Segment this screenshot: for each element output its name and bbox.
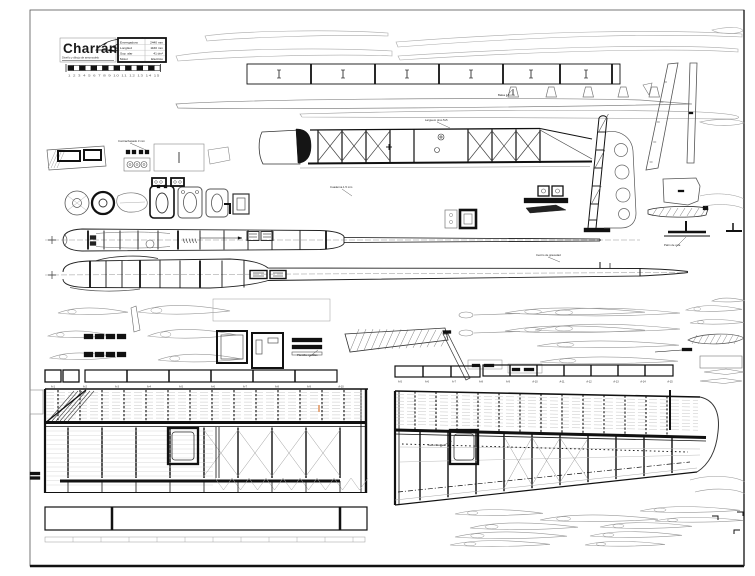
rib-label: A-5 [179, 386, 184, 389]
scale-bar-segment [154, 66, 160, 71]
stack-part [106, 352, 115, 357]
rib-label: A-2 [83, 386, 88, 389]
rib-label: A-10 [338, 386, 344, 389]
scale-bar-segment [126, 66, 132, 71]
spec-label-motor: Motor [120, 57, 128, 61]
stack-part [84, 352, 93, 357]
annotation: Contrachapado 3 mm [118, 139, 146, 143]
rib-label: A-6 [211, 386, 216, 389]
stack-part [117, 352, 126, 357]
annotation: Plantilla costillas [297, 353, 318, 357]
tab [139, 150, 143, 154]
spar-stock [292, 338, 322, 342]
scale-bar-segment [103, 66, 109, 71]
rib-label: A-1 [51, 386, 56, 389]
plan-line [524, 368, 534, 371]
scale-bar-segment [85, 66, 91, 71]
scale-bar-segment [68, 66, 74, 71]
spec-value-length: 1160 mm [150, 46, 163, 50]
annotation: Larguero pino 5x5 [425, 118, 448, 122]
scale-bar-segment [97, 66, 103, 71]
rib-label: A-9 [307, 386, 312, 389]
stack-part [95, 334, 104, 339]
spec-label-span: Envergadura [120, 40, 138, 44]
plan-drawing: Charrán Diseño y dibujo de aeromodelo En… [0, 0, 755, 576]
scale-bar-segment [91, 66, 97, 71]
plan-title: Charrán [63, 41, 118, 56]
annotation: Centro de gravedad [536, 253, 561, 257]
scale-bar-segment [143, 66, 149, 71]
stack-part [95, 352, 104, 357]
rib-label: A-13 [613, 381, 619, 384]
plan-line [90, 236, 96, 240]
annotation: Cuaderna 1.5 mm [330, 185, 353, 189]
rib-label: A-8 [275, 386, 280, 389]
spec-value-area: 41 dm² [153, 52, 163, 56]
scale-bar-segment [131, 66, 137, 71]
scale-bar-segment [74, 66, 80, 71]
plan-line [678, 190, 684, 192]
plan-sheet: Charrán Diseño y dibujo de aeromodelo En… [0, 0, 755, 576]
spec-label-length: Longitud [120, 46, 132, 50]
spec-value-span: 2440 mm [150, 40, 163, 44]
plan-line [512, 368, 520, 371]
scale-bar-segment [108, 66, 114, 71]
rib-label: A-15 [667, 381, 673, 384]
rib-label: A-5 [398, 381, 403, 384]
scale-bar-segment [120, 66, 126, 71]
spar-stock [524, 198, 568, 203]
stack-part [117, 334, 126, 339]
rib-label: A-8 [479, 381, 484, 384]
rib-label: A-7 [243, 386, 248, 389]
scale-bar-segment [149, 66, 155, 71]
rib-label: A-14 [640, 381, 646, 384]
rib-label: A-12 [586, 381, 592, 384]
plan-line [689, 112, 693, 114]
plan-line [30, 472, 40, 475]
plan-line [703, 206, 708, 210]
tab [126, 150, 130, 154]
rib-label: A-6 [425, 381, 430, 384]
annotation: Balsa 1.5 mm [498, 93, 516, 97]
tab [132, 150, 136, 154]
rib-label: A-11 [559, 381, 565, 384]
rib-label: A-7 [452, 381, 457, 384]
plan-line [682, 348, 692, 351]
scale-numbers: 1 2 3 4 5 6 7 8 9 10 11 12 13 14 15 [68, 74, 160, 78]
scale-bar-segment [137, 66, 143, 71]
rib-label: A-4 [147, 386, 152, 389]
plan-line [443, 331, 451, 334]
spar-stock [292, 345, 322, 349]
plan-line [30, 477, 40, 480]
annotation: Servo alerón [428, 443, 444, 447]
rib-label: A-3 [115, 386, 120, 389]
spec-label-area: Sup. alar [120, 52, 132, 56]
rib-label: A-10 [532, 381, 538, 384]
scale-bar-segment [80, 66, 86, 71]
rib-label: A-9 [506, 381, 511, 384]
plan-subtitle: Diseño y dibujo de aeromodelo [62, 56, 100, 60]
spec-value-motor: Eléctrico [151, 57, 163, 61]
stack-part [84, 334, 93, 339]
tab [145, 150, 149, 154]
plan-line [90, 242, 96, 246]
fin-base [584, 228, 610, 232]
stack-part [106, 334, 115, 339]
scale-bar-segment [114, 66, 120, 71]
